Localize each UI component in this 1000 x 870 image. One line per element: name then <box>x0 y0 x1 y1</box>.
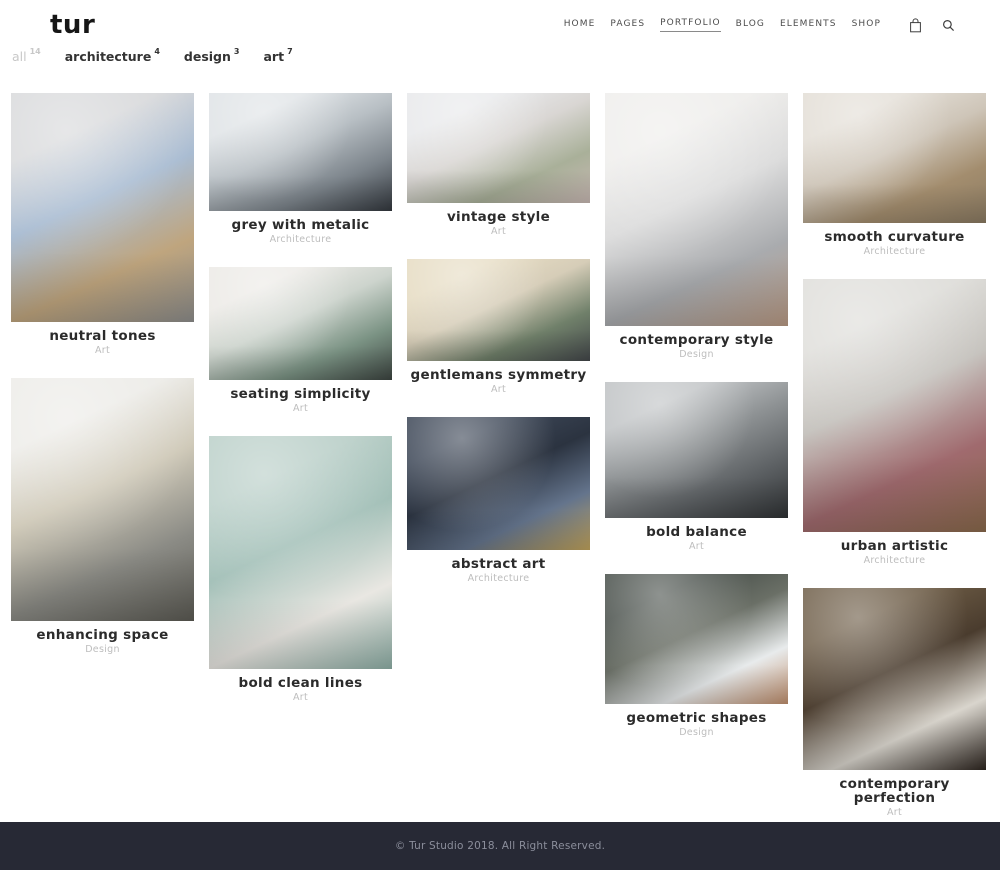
project-caption: bold clean lines Art <box>209 676 392 703</box>
project-image[interactable] <box>407 259 590 361</box>
project-category: Architecture <box>407 573 590 584</box>
project-image[interactable] <box>803 279 986 532</box>
filter-label: design <box>184 48 231 66</box>
project-category: Art <box>209 403 392 414</box>
filter-count: 14 <box>30 43 41 61</box>
filter-item[interactable]: design3 <box>184 48 240 66</box>
filter-item[interactable]: all14 <box>12 48 41 66</box>
project-title[interactable]: urban artistic <box>803 539 986 553</box>
masonry-column: neutral tones Art enhancing space Design <box>11 93 194 655</box>
project-category: Art <box>407 226 590 237</box>
filter-label: architecture <box>65 48 152 66</box>
project-title[interactable]: abstract art <box>407 557 590 571</box>
project-title[interactable]: bold balance <box>605 525 788 539</box>
project-image[interactable] <box>605 382 788 518</box>
filter-count: 4 <box>154 43 160 61</box>
project-image[interactable] <box>407 93 590 203</box>
project-caption: contemporary style Design <box>605 333 788 360</box>
project-caption: vintage style Art <box>407 210 590 237</box>
project-caption: abstract art Architecture <box>407 557 590 584</box>
nav-link[interactable]: SHOP <box>852 19 881 32</box>
masonry-column: smooth curvature Architecture urban arti… <box>803 93 986 818</box>
project-category: Art <box>605 541 788 552</box>
copyright-text: © Tur Studio 2018. All Right Reserved. <box>395 840 605 852</box>
portfolio-card[interactable]: urban artistic Architecture <box>803 279 986 566</box>
nav-link[interactable]: PAGES <box>610 19 645 32</box>
portfolio-card[interactable]: grey with metalic Architecture <box>209 93 392 245</box>
project-image[interactable] <box>605 93 788 326</box>
project-caption: neutral tones Art <box>11 329 194 356</box>
project-image[interactable] <box>209 93 392 211</box>
project-title[interactable]: neutral tones <box>11 329 194 343</box>
portfolio-card[interactable]: abstract art Architecture <box>407 417 590 584</box>
filter-label: all <box>12 48 27 66</box>
masonry-column: vintage style Art gentlemans symmetry Ar… <box>407 93 590 584</box>
project-title[interactable]: bold clean lines <box>209 676 392 690</box>
masonry-column: grey with metalic Architecture seating s… <box>209 93 392 703</box>
site-header: tur HOME PAGES PORTFOLIO BLOG ELEMENTS S… <box>0 0 1000 44</box>
portfolio-card[interactable]: gentlemans symmetry Art <box>407 259 590 395</box>
project-caption: seating simplicity Art <box>209 387 392 414</box>
project-image[interactable] <box>803 588 986 770</box>
project-image[interactable] <box>209 436 392 669</box>
portfolio-card[interactable]: seating simplicity Art <box>209 267 392 414</box>
project-title[interactable]: smooth curvature <box>803 230 986 244</box>
portfolio-filter-bar: all14 architecture4 design3 art7 <box>0 44 1000 72</box>
header-icons <box>907 17 956 33</box>
project-category: Architecture <box>803 246 986 257</box>
project-category: Art <box>11 345 194 356</box>
project-caption: bold balance Art <box>605 525 788 552</box>
project-category: Architecture <box>209 234 392 245</box>
portfolio-card[interactable]: vintage style Art <box>407 93 590 237</box>
header-right: HOME PAGES PORTFOLIO BLOG ELEMENTS SHOP <box>564 17 956 33</box>
filter-item[interactable]: art7 <box>263 48 292 66</box>
masonry-column: contemporary style Design bold balance A… <box>605 93 788 738</box>
portfolio-card[interactable]: bold balance Art <box>605 382 788 552</box>
nav-link[interactable]: HOME <box>564 19 596 32</box>
portfolio-grid: neutral tones Art enhancing space Design… <box>0 93 1000 818</box>
portfolio-card[interactable]: neutral tones Art <box>11 93 194 356</box>
site-logo[interactable]: tur <box>50 8 95 42</box>
nav-link[interactable]: ELEMENTS <box>780 19 837 32</box>
project-category: Design <box>605 727 788 738</box>
project-caption: enhancing space Design <box>11 628 194 655</box>
filter-count: 7 <box>287 43 293 61</box>
project-title[interactable]: geometric shapes <box>605 711 788 725</box>
project-category: Design <box>605 349 788 360</box>
portfolio-card[interactable]: bold clean lines Art <box>209 436 392 703</box>
project-category: Design <box>11 644 194 655</box>
site-footer: © Tur Studio 2018. All Right Reserved. <box>0 822 1000 870</box>
project-caption: smooth curvature Architecture <box>803 230 986 257</box>
project-image[interactable] <box>11 378 194 621</box>
portfolio-card[interactable]: contemporary style Design <box>605 93 788 360</box>
project-title[interactable]: contemporary perfection <box>803 777 986 805</box>
project-caption: urban artistic Architecture <box>803 539 986 566</box>
search-icon[interactable] <box>940 17 956 33</box>
nav-link[interactable]: BLOG <box>736 19 765 32</box>
project-title[interactable]: seating simplicity <box>209 387 392 401</box>
project-title[interactable]: gentlemans symmetry <box>407 368 590 382</box>
project-category: Art <box>407 384 590 395</box>
project-caption: contemporary perfection Art <box>803 777 986 818</box>
project-title[interactable]: grey with metalic <box>209 218 392 232</box>
project-image[interactable] <box>803 93 986 223</box>
project-caption: grey with metalic Architecture <box>209 218 392 245</box>
project-category: Art <box>803 807 986 818</box>
project-image[interactable] <box>209 267 392 380</box>
portfolio-card[interactable]: geometric shapes Design <box>605 574 788 738</box>
project-title[interactable]: enhancing space <box>11 628 194 642</box>
project-image[interactable] <box>605 574 788 704</box>
project-caption: gentlemans symmetry Art <box>407 368 590 395</box>
project-title[interactable]: contemporary style <box>605 333 788 347</box>
filter-label: art <box>263 48 284 66</box>
filter-item[interactable]: architecture4 <box>65 48 160 66</box>
nav-link[interactable]: PORTFOLIO <box>660 18 721 32</box>
portfolio-card[interactable]: enhancing space Design <box>11 378 194 655</box>
filter-count: 3 <box>234 43 240 61</box>
project-title[interactable]: vintage style <box>407 210 590 224</box>
project-image[interactable] <box>11 93 194 322</box>
portfolio-card[interactable]: smooth curvature Architecture <box>803 93 986 257</box>
portfolio-card[interactable]: contemporary perfection Art <box>803 588 986 818</box>
project-category: Art <box>209 692 392 703</box>
main-nav: HOME PAGES PORTFOLIO BLOG ELEMENTS SHOP <box>564 18 881 32</box>
project-caption: geometric shapes Design <box>605 711 788 738</box>
project-category: Architecture <box>803 555 986 566</box>
project-image[interactable] <box>407 417 590 550</box>
cart-icon[interactable] <box>907 17 923 33</box>
